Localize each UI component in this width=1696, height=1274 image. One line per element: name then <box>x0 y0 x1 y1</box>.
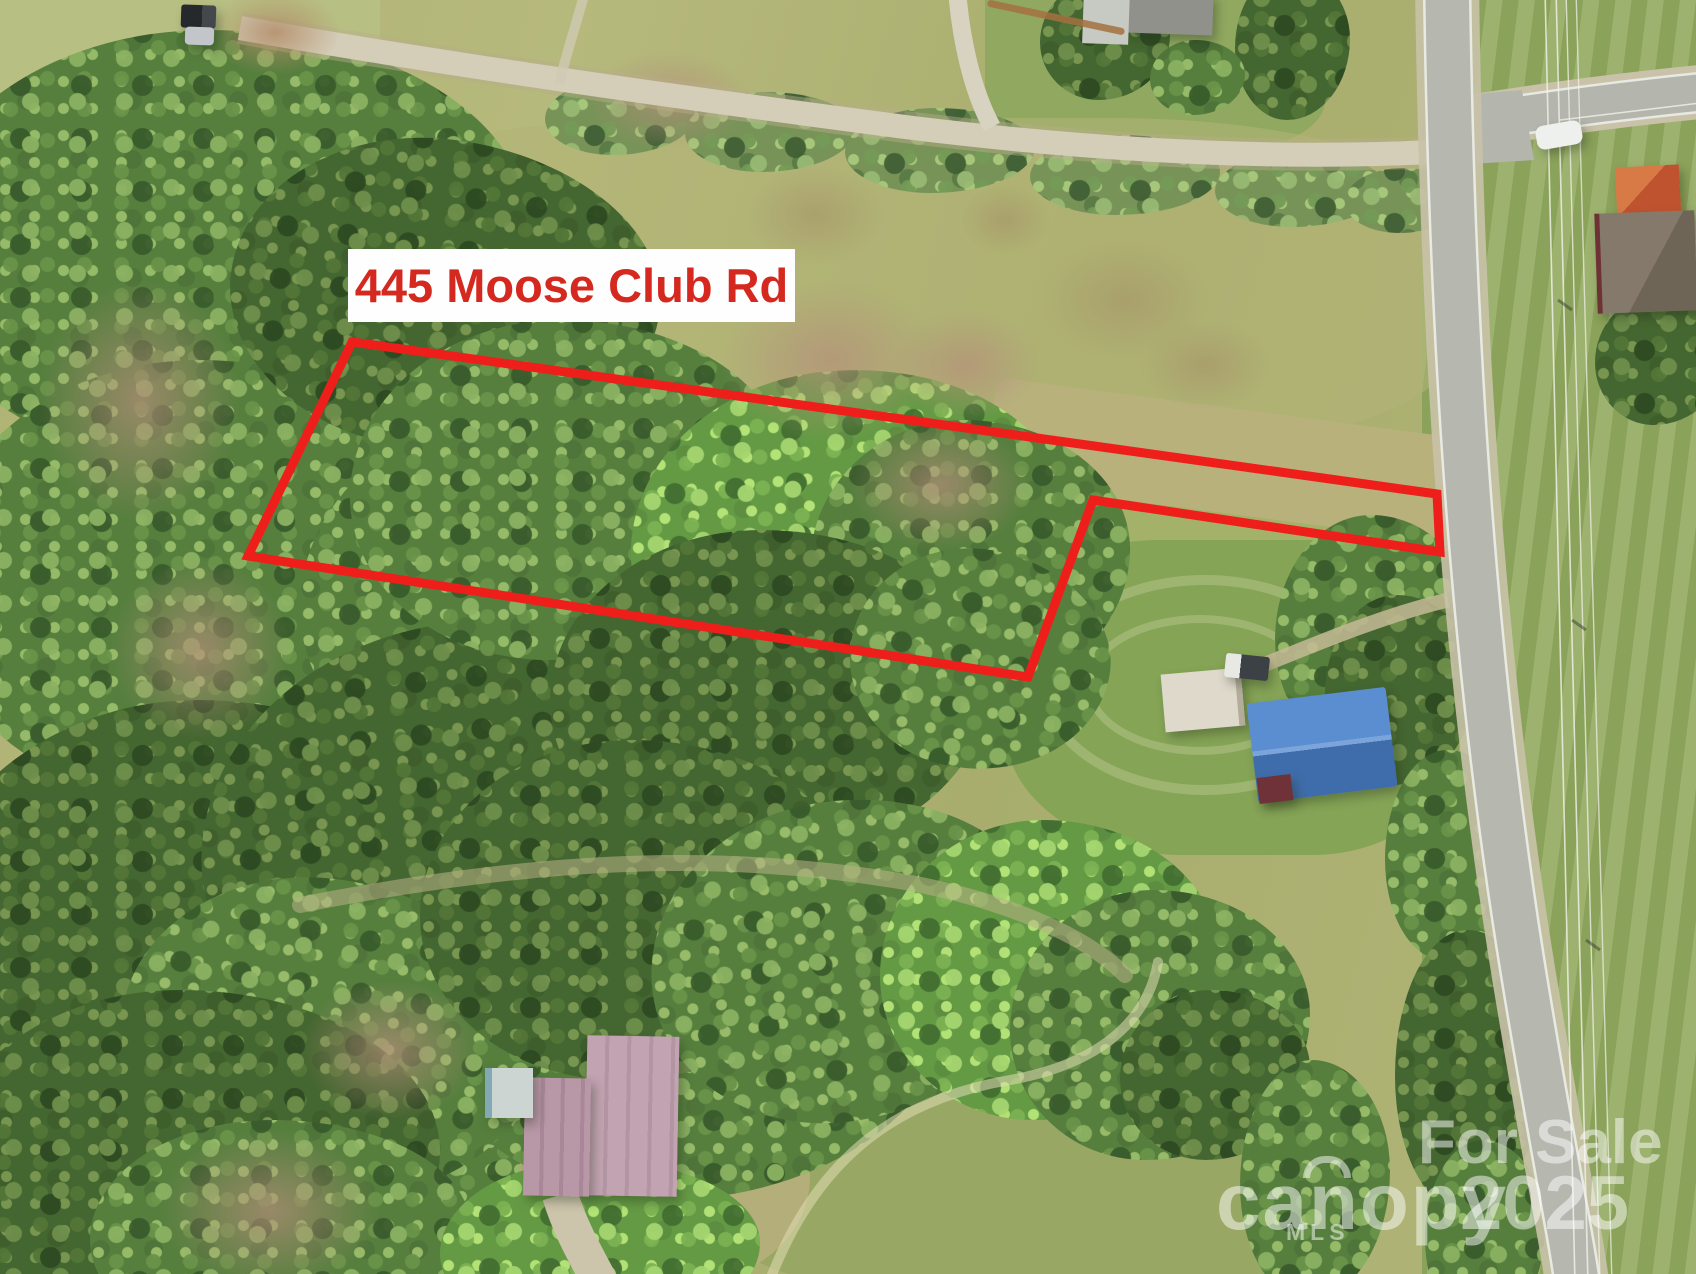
aerial-photo: 445 Moose Club Rd For Sale canopy MLS 20… <box>0 0 1696 1274</box>
brown-roof-house-right <box>1594 210 1696 313</box>
scrub-patch <box>960 185 1050 255</box>
pickup-truck-neighbor <box>1224 653 1270 681</box>
tree-canopy <box>1235 0 1350 120</box>
red-carport-right <box>1615 164 1681 215</box>
dead-foliage-patch <box>850 420 1030 550</box>
gravel-road-spur <box>559 0 585 84</box>
maroon-porch-blue-house <box>1257 774 1294 804</box>
dead-foliage-patch <box>110 560 290 740</box>
gray-roof-house-top <box>1126 0 1213 35</box>
dead-foliage-patch <box>590 50 750 150</box>
watermark-year: 2025 <box>1460 1166 1629 1242</box>
white-shed-bottom-left <box>485 1068 533 1118</box>
watermark-mls: MLS <box>1286 1221 1350 1244</box>
mauve-roof-house-wing <box>523 1077 591 1196</box>
address-label: 445 Moose Club Rd <box>348 249 795 322</box>
scrub-patch <box>890 310 1040 420</box>
dead-foliage-patch <box>40 280 240 520</box>
silver-car-top-left <box>185 26 215 45</box>
scrub-patch <box>1140 320 1270 410</box>
dead-foliage-patch <box>300 980 480 1120</box>
mauve-roof-house-main <box>585 1035 680 1197</box>
pickup-truck-top-left <box>181 4 217 28</box>
